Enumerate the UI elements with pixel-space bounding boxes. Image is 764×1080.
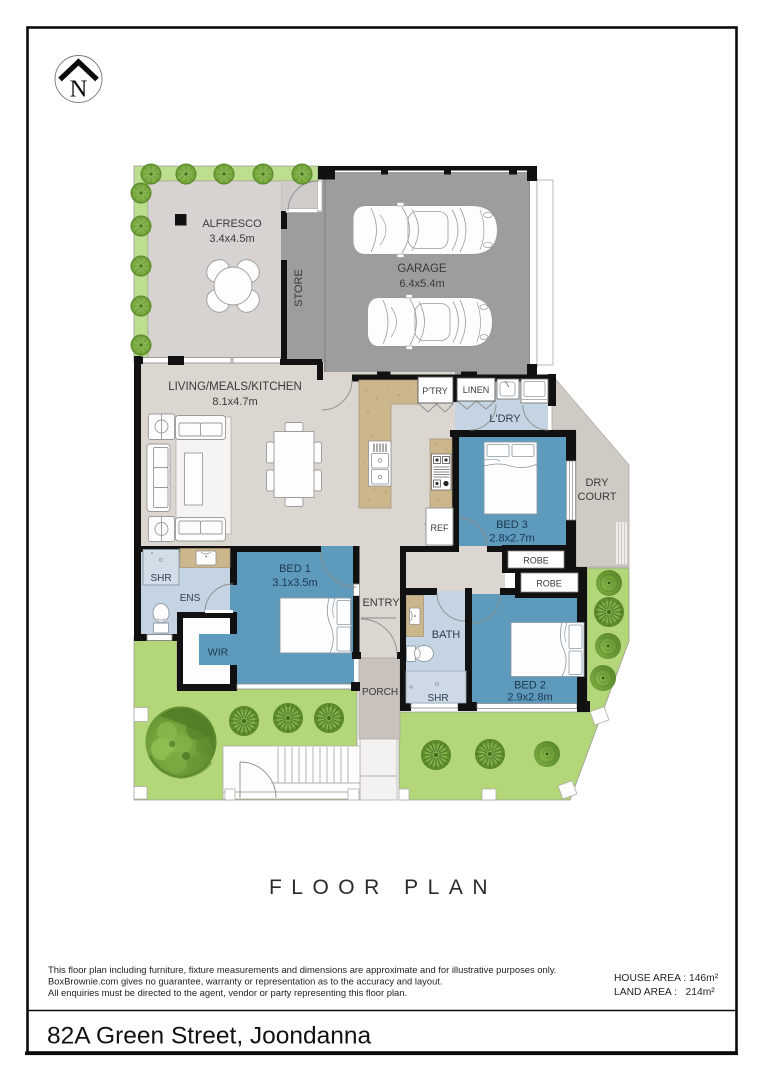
svg-text:SHR: SHR bbox=[150, 573, 171, 584]
svg-text:3.1x3.5m: 3.1x3.5m bbox=[272, 577, 317, 589]
svg-text:LAND AREA : 214m²: LAND AREA : 214m² bbox=[614, 987, 715, 998]
svg-text:BED 3: BED 3 bbox=[496, 519, 528, 531]
svg-text:HOUSE AREA : 146m²: HOUSE AREA : 146m² bbox=[614, 973, 719, 984]
svg-text:BATH: BATH bbox=[432, 629, 461, 641]
svg-text:3.4x4.5m: 3.4x4.5m bbox=[209, 233, 254, 245]
svg-text:BoxBrownie.com gives no guaran: BoxBrownie.com gives no guarantee, warra… bbox=[48, 976, 443, 987]
svg-text:DRY: DRY bbox=[585, 477, 609, 489]
svg-text:N: N bbox=[70, 76, 88, 103]
svg-text:6.4x5.4m: 6.4x5.4m bbox=[399, 278, 444, 290]
svg-text:FLOOR PLAN: FLOOR PLAN bbox=[269, 876, 497, 899]
svg-text:BED 1: BED 1 bbox=[279, 563, 311, 575]
svg-text:P'TRY: P'TRY bbox=[422, 386, 448, 396]
svg-text:ROBE: ROBE bbox=[523, 556, 549, 566]
svg-text:GARAGE: GARAGE bbox=[397, 263, 447, 275]
svg-text:LIVING/MEALS/KITCHEN: LIVING/MEALS/KITCHEN bbox=[168, 381, 302, 393]
svg-text:WIR: WIR bbox=[208, 647, 229, 659]
svg-text:REF: REF bbox=[431, 523, 450, 533]
svg-text:All enquiries must be directed: All enquiries must be directed to the ag… bbox=[48, 987, 407, 998]
svg-text:COURT: COURT bbox=[578, 491, 617, 503]
svg-text:SHR: SHR bbox=[427, 693, 448, 704]
svg-text:ALFRESCO: ALFRESCO bbox=[202, 218, 262, 230]
svg-text:ENS: ENS bbox=[180, 593, 201, 604]
svg-text:This floor plan including furn: This floor plan including furniture, fix… bbox=[48, 964, 556, 975]
svg-text:LINEN: LINEN bbox=[463, 385, 490, 395]
svg-text:BED 2: BED 2 bbox=[514, 680, 546, 692]
svg-text:STORE: STORE bbox=[293, 269, 305, 307]
svg-text:L'DRY: L'DRY bbox=[489, 413, 521, 425]
svg-text:ENTRY: ENTRY bbox=[362, 597, 400, 609]
svg-text:2.8x2.7m: 2.8x2.7m bbox=[489, 533, 534, 545]
svg-text:PORCH: PORCH bbox=[362, 687, 398, 698]
svg-text:82A Green Street, Joondanna: 82A Green Street, Joondanna bbox=[47, 1023, 372, 1050]
svg-text:ROBE: ROBE bbox=[536, 579, 562, 589]
svg-text:2.9x2.8m: 2.9x2.8m bbox=[507, 692, 552, 704]
svg-text:8.1x4.7m: 8.1x4.7m bbox=[212, 396, 257, 408]
